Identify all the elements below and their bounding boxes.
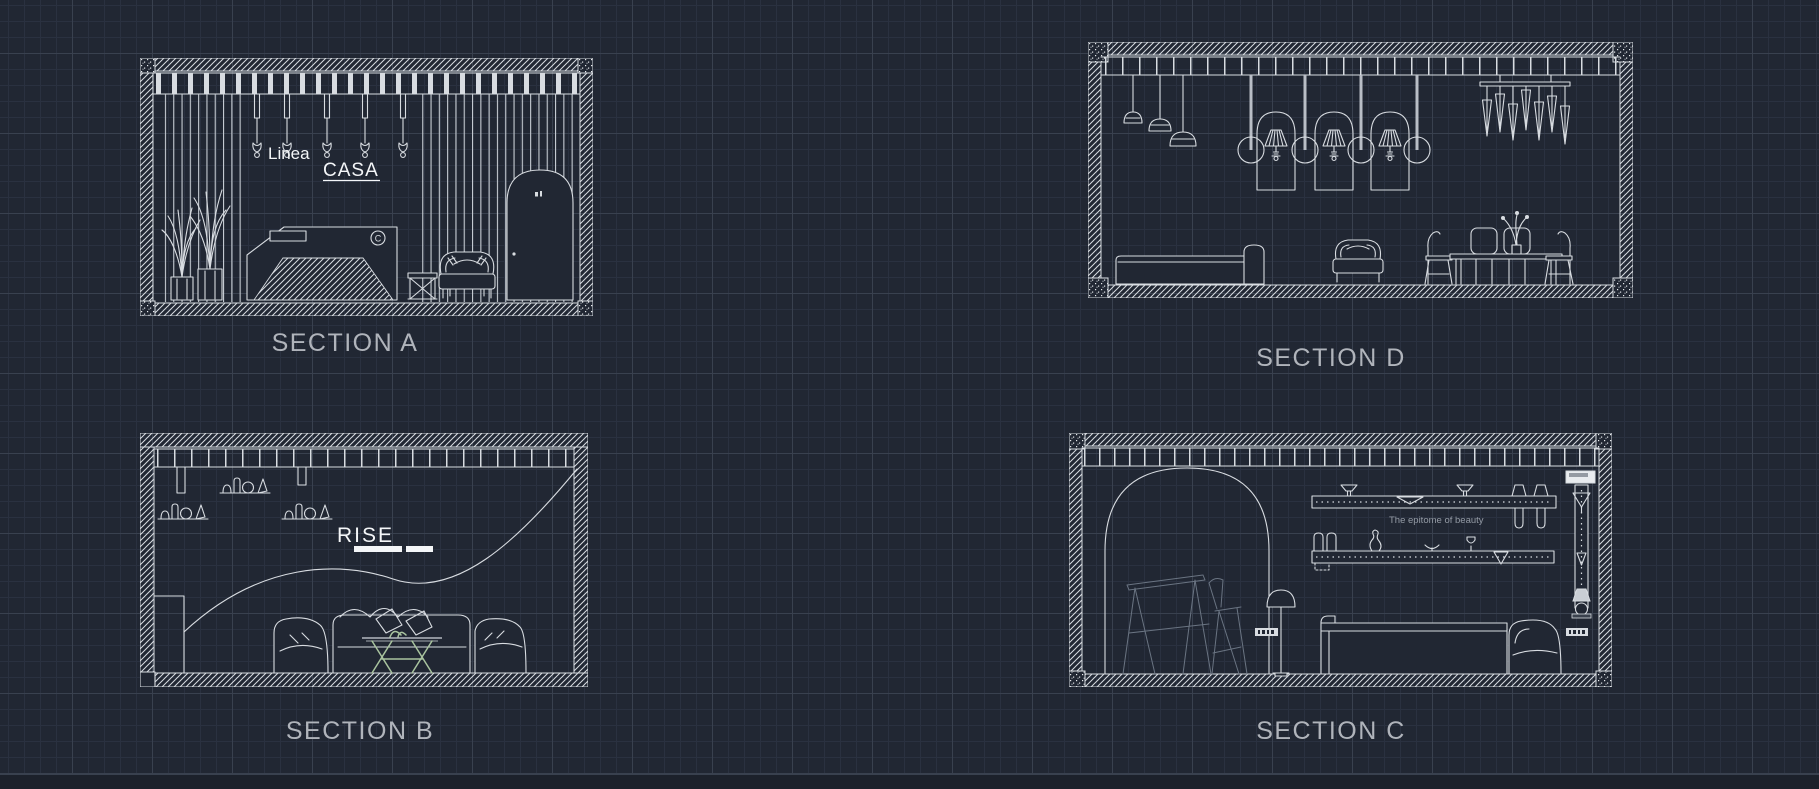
hanging-shelves xyxy=(158,467,332,519)
arched-door xyxy=(507,170,573,300)
dome-pendant-lights xyxy=(1124,75,1196,146)
viewport-bottom-edge xyxy=(0,774,1819,789)
brand-signage: RISE xyxy=(337,524,433,552)
section-a-drawing[interactable]: Linea CASA C xyxy=(140,58,593,316)
wall-label-right xyxy=(1566,628,1588,636)
wall-return xyxy=(154,596,184,673)
display-shelf-lower xyxy=(1312,530,1554,570)
section-a-label[interactable]: SECTION A xyxy=(272,329,419,358)
section-c-label[interactable]: SECTION C xyxy=(1256,717,1406,746)
reception-desk: C xyxy=(247,227,397,300)
sofa xyxy=(1116,245,1264,284)
niche-lamps xyxy=(1265,130,1401,161)
ceiling-battens xyxy=(154,449,574,467)
section-d-drawing[interactable] xyxy=(1088,42,1633,298)
desk-sketch xyxy=(1123,575,1247,674)
section-d-label[interactable]: SECTION D xyxy=(1256,344,1406,373)
display-column xyxy=(1572,485,1591,618)
wall-vent xyxy=(1566,471,1595,483)
section-b-drawing[interactable]: RISE xyxy=(140,433,588,687)
cad-viewport[interactable]: Linea CASA C xyxy=(0,0,1819,789)
long-sofa xyxy=(1321,616,1507,674)
ceiling-battens xyxy=(1082,448,1599,466)
signage-casa: CASA xyxy=(323,160,379,181)
cone-chandelier xyxy=(1480,75,1570,144)
wall-label-left xyxy=(1255,628,1278,636)
ceiling-battens xyxy=(1101,57,1620,75)
armchair xyxy=(1333,240,1383,282)
tagline-text: The epitome of beauty xyxy=(1389,515,1484,526)
signage-linea: Linea xyxy=(268,144,310,163)
armchair-right xyxy=(1509,620,1561,674)
ceiling-battens xyxy=(153,73,580,94)
section-b-label[interactable]: SECTION B xyxy=(286,717,434,746)
arched-niches xyxy=(1257,112,1409,190)
dining-set xyxy=(1425,211,1573,284)
desk-logo: C xyxy=(375,234,382,244)
signage-rise: RISE xyxy=(337,524,394,547)
section-c-drawing[interactable]: The epitome of beauty xyxy=(1069,433,1612,687)
